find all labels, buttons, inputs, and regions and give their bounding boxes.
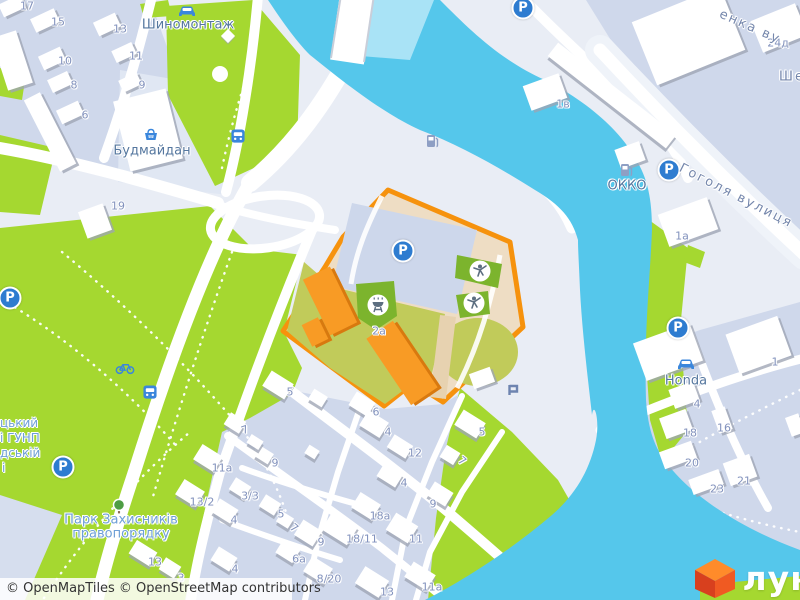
bridge: [347, 0, 357, 62]
attribution-osm-link[interactable]: © OpenStreetMap contributors: [119, 581, 321, 596]
map-base-layer: [0, 0, 800, 600]
lun-cube-icon: [693, 558, 737, 598]
map-attribution: © OpenMapTiles© OpenStreetMap contributo…: [0, 578, 292, 600]
playground-area: [456, 291, 490, 318]
attribution-openmaptiles-link[interactable]: © OpenMapTiles: [6, 581, 115, 596]
lun-logo-text: лун: [743, 562, 800, 595]
lun-logo[interactable]: лун: [693, 558, 800, 598]
map-canvas[interactable]: PPPPPP17151311109861924д1в1а141816202123…: [0, 0, 800, 600]
